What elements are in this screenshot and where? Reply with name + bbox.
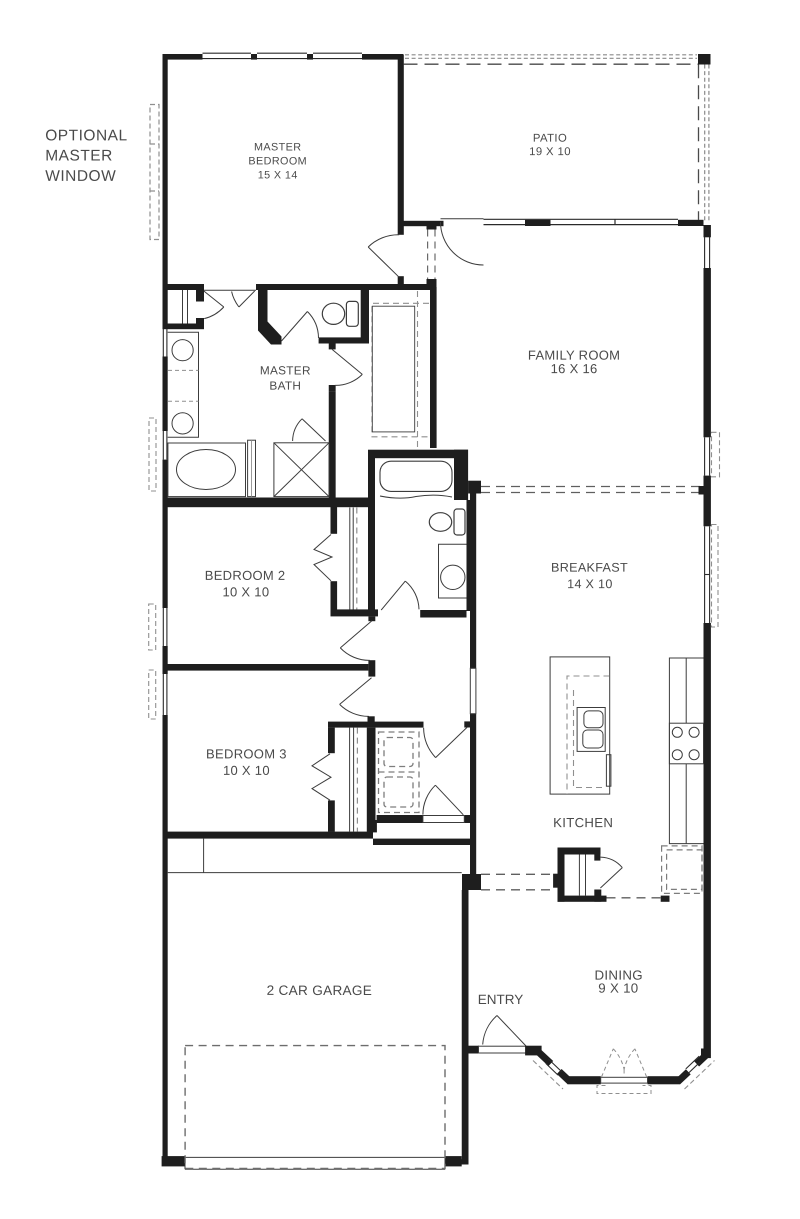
- svg-text:KITCHEN: KITCHEN: [553, 815, 613, 830]
- svg-text:14 X 10: 14 X 10: [567, 577, 613, 591]
- svg-text:BEDROOM 3: BEDROOM 3: [206, 746, 287, 761]
- svg-text:BREAKFAST: BREAKFAST: [551, 561, 628, 575]
- svg-text:10 X 10: 10 X 10: [223, 763, 270, 778]
- svg-text:WINDOW: WINDOW: [45, 168, 116, 185]
- svg-text:BATH: BATH: [269, 379, 301, 393]
- svg-text:10 X 10: 10 X 10: [222, 584, 269, 599]
- svg-text:OPTIONAL: OPTIONAL: [45, 127, 127, 144]
- svg-text:15 X 14: 15 X 14: [258, 169, 298, 181]
- svg-text:BEDROOM: BEDROOM: [248, 155, 307, 167]
- svg-text:BEDROOM 2: BEDROOM 2: [205, 568, 286, 583]
- svg-text:MASTER: MASTER: [260, 363, 311, 377]
- svg-text:19 X 10: 19 X 10: [529, 146, 571, 158]
- svg-text:16 X 16: 16 X 16: [551, 361, 598, 376]
- svg-text:2 CAR GARAGE: 2 CAR GARAGE: [267, 983, 373, 998]
- svg-text:MASTER: MASTER: [45, 148, 113, 165]
- svg-text:MASTER: MASTER: [254, 141, 301, 153]
- svg-text:PATIO: PATIO: [533, 133, 567, 145]
- svg-text:ENTRY: ENTRY: [478, 992, 524, 1007]
- svg-text:9 X 10: 9 X 10: [598, 981, 638, 996]
